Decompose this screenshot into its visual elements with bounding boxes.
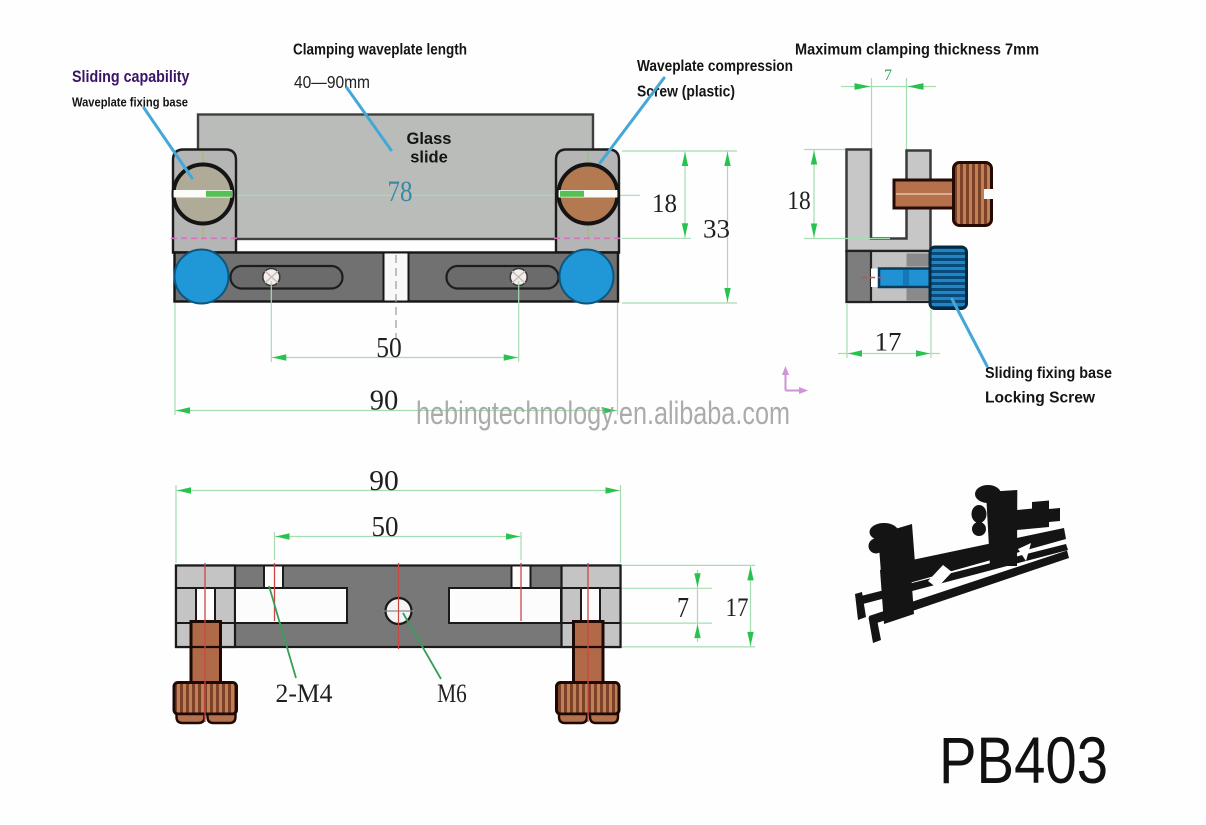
svg-text:78: 78	[388, 175, 413, 208]
svg-text:M6: M6	[437, 679, 467, 708]
svg-text:hebingtechnology.en.alibaba.co: hebingtechnology.en.alibaba.com	[416, 395, 790, 431]
svg-text:Sliding fixing base: Sliding fixing base	[985, 365, 1112, 382]
svg-text:90: 90	[370, 386, 399, 417]
svg-text:Clamping waveplate length: Clamping waveplate length	[293, 42, 467, 59]
svg-text:slide: slide	[410, 149, 448, 167]
svg-text:Glass: Glass	[407, 130, 452, 148]
svg-text:Locking Screw: Locking Screw	[985, 390, 1096, 407]
svg-text:90: 90	[369, 466, 399, 497]
svg-text:40—90mm: 40—90mm	[294, 72, 370, 92]
svg-text:PB403: PB403	[939, 723, 1108, 797]
svg-text:7: 7	[677, 593, 689, 624]
svg-text:33: 33	[703, 215, 730, 244]
svg-text:17: 17	[726, 593, 749, 622]
svg-text:18: 18	[787, 186, 811, 215]
svg-text:7: 7	[884, 67, 892, 84]
svg-text:Maximum clamping thickness 7mm: Maximum clamping thickness 7mm	[795, 42, 1039, 59]
svg-text:50: 50	[376, 333, 402, 364]
svg-text:2-M4: 2-M4	[276, 679, 333, 708]
svg-text:18: 18	[652, 189, 677, 218]
svg-text:Sliding capability: Sliding capability	[72, 68, 190, 86]
svg-text:Waveplate compression: Waveplate compression	[637, 58, 793, 75]
svg-text:17: 17	[875, 328, 902, 357]
svg-text:50: 50	[372, 512, 399, 543]
svg-text:Waveplate fixing base: Waveplate fixing base	[72, 95, 188, 110]
